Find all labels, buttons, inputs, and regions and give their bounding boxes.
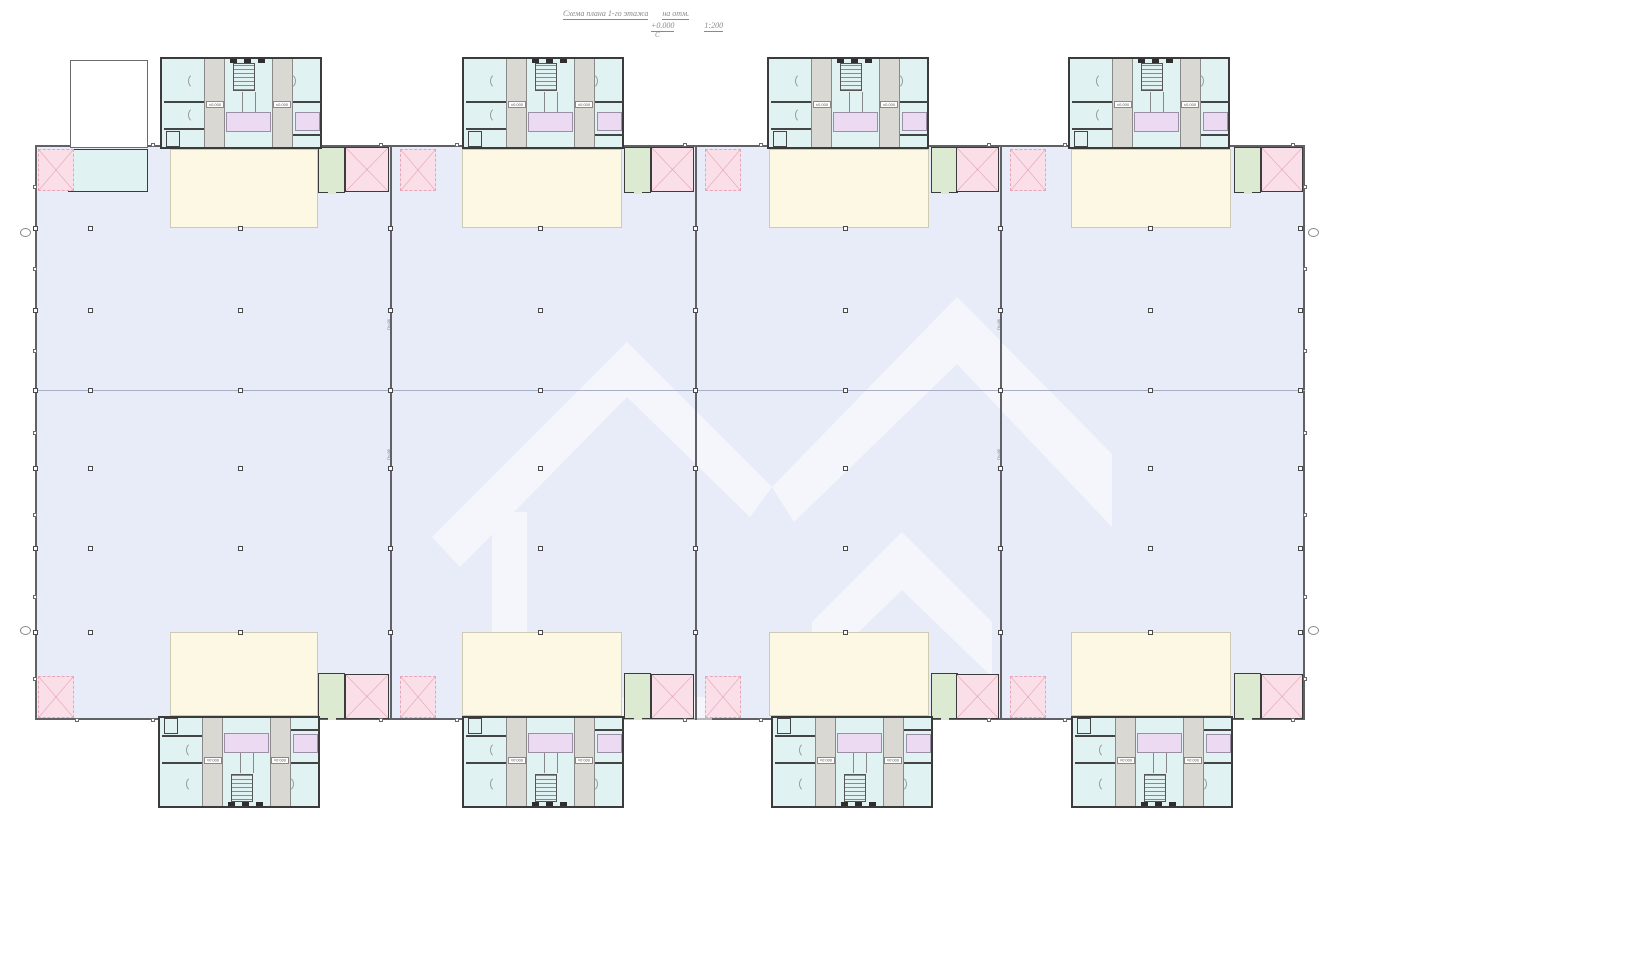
- partition: [557, 753, 558, 773]
- mezzanine-zone: [769, 632, 929, 716]
- partition: [1201, 101, 1229, 103]
- column-marker: [538, 546, 543, 551]
- door-arc-icon: [582, 776, 598, 792]
- wall-tick: [33, 677, 37, 681]
- partition: [853, 753, 854, 773]
- partition: [255, 92, 256, 112]
- axis-bubble: [1308, 626, 1319, 635]
- office-module: ±0.000 ±0.000: [1068, 57, 1230, 149]
- door-arc-icon: [188, 73, 204, 89]
- title-text: Схема плана 1-го этажа: [563, 9, 648, 20]
- wc-room: [468, 718, 482, 734]
- wall-tick: [987, 143, 991, 147]
- partition: [1072, 128, 1112, 130]
- elevation-tag: ±0.000: [813, 101, 831, 108]
- title-row-2: +0.000 1:200: [651, 21, 723, 30]
- door-arc-icon: [278, 776, 294, 792]
- elevation-tag: ±0.000: [204, 757, 222, 764]
- partition: [162, 763, 202, 765]
- column-marker: [693, 630, 698, 635]
- partition: [862, 92, 863, 112]
- column-marker: [1148, 466, 1153, 471]
- partition: [466, 736, 506, 738]
- utility-room: [295, 112, 320, 131]
- column-marker: [33, 388, 38, 393]
- partition: [771, 128, 811, 130]
- mezzanine-zone: [170, 632, 318, 716]
- wall-tick: [1303, 267, 1307, 271]
- vent-icon: [865, 59, 872, 63]
- vent-icon: [258, 59, 265, 63]
- elevation-tag: ±0.000: [817, 757, 835, 764]
- utility-room: [906, 734, 931, 753]
- column-marker: [238, 546, 243, 551]
- dock-zone-planned: [38, 149, 74, 191]
- dock-zone: [651, 674, 694, 719]
- elevation-tag: ±0.000: [1114, 101, 1132, 108]
- partition: [900, 134, 928, 136]
- column-marker: [1298, 308, 1303, 313]
- office-module: ±0.000 ±0.000: [462, 57, 624, 149]
- partition: [162, 736, 202, 738]
- column-marker: [538, 630, 543, 635]
- drawing-title: Схема плана 1-го этажа на отм. +0.000 1:…: [563, 9, 723, 40]
- lobby-room: [837, 733, 882, 753]
- door-arc-icon: [1188, 73, 1204, 89]
- vent-icon: [560, 59, 567, 63]
- wall-tick: [1303, 677, 1307, 681]
- door-arc-icon: [490, 107, 506, 123]
- door-arc-icon: [799, 776, 815, 792]
- wall-tick: [33, 513, 37, 517]
- stair-icon: [535, 774, 557, 802]
- column-marker: [538, 308, 543, 313]
- dock-zone-planned: [705, 676, 741, 718]
- partition: [775, 763, 815, 765]
- tech-room: [1234, 673, 1261, 719]
- column-marker: [843, 466, 848, 471]
- wall-tick: [1291, 143, 1295, 147]
- partition: [291, 763, 319, 765]
- lobby-room: [528, 733, 573, 753]
- column-marker: [388, 308, 393, 313]
- vent-icon: [841, 802, 848, 806]
- vent-icon: [1138, 59, 1145, 63]
- partition: [595, 763, 623, 765]
- wall-label: Пч-08: [386, 449, 391, 460]
- column-marker: [88, 630, 93, 635]
- door-arc-icon: [1096, 73, 1112, 89]
- column-marker: [388, 466, 393, 471]
- column-marker: [88, 466, 93, 471]
- column-marker: [998, 388, 1003, 393]
- wc-room: [1077, 718, 1091, 734]
- office-module: ±0.000 ±0.000: [1071, 716, 1233, 808]
- column-marker: [538, 388, 543, 393]
- mezzanine-zone: [1071, 149, 1231, 228]
- vent-icon: [546, 59, 553, 63]
- door-arc-icon: [887, 73, 903, 89]
- dock-zone-planned: [400, 149, 436, 191]
- door-arc-icon: [188, 107, 204, 123]
- column-marker: [238, 308, 243, 313]
- partition: [904, 730, 932, 732]
- partition: [595, 101, 623, 103]
- partition: [1072, 101, 1112, 103]
- office-module: ±0.000 ±0.000: [767, 57, 929, 149]
- stair-icon: [840, 63, 862, 91]
- lobby-room: [1134, 112, 1179, 132]
- elevation-tag: ±0.000: [271, 757, 289, 764]
- tech-room: [624, 673, 651, 719]
- column-marker: [843, 308, 848, 313]
- axis-bubble: [20, 626, 31, 635]
- partition: [1163, 92, 1164, 112]
- vent-icon: [242, 802, 249, 806]
- partition: [240, 753, 241, 773]
- column-marker: [1298, 466, 1303, 471]
- column-marker: [998, 308, 1003, 313]
- utility-room: [597, 112, 622, 131]
- vent-icon: [1155, 802, 1162, 806]
- section-mark: С: [655, 31, 723, 40]
- dock-zone: [1261, 674, 1303, 719]
- partition: [544, 92, 545, 112]
- dock-zone-planned: [1010, 149, 1046, 191]
- partition: [1201, 134, 1229, 136]
- vent-icon: [256, 802, 263, 806]
- column-marker: [388, 388, 393, 393]
- dock-zone: [956, 674, 999, 719]
- vent-icon: [1166, 59, 1173, 63]
- lobby-room: [1137, 733, 1182, 753]
- column-marker: [388, 546, 393, 551]
- partition: [1153, 753, 1154, 773]
- partition: [1204, 730, 1232, 732]
- lobby-room: [528, 112, 573, 132]
- partition: [1075, 763, 1115, 765]
- door-arc-icon: [186, 742, 202, 758]
- office-module: ±0.000 ±0.000: [160, 57, 322, 149]
- partition: [164, 128, 204, 130]
- partition: [253, 753, 254, 773]
- vent-icon: [532, 802, 539, 806]
- dock-zone-planned: [1010, 676, 1046, 718]
- floor-plan-canvas: Схема плана 1-го этажа на отм. +0.000 1:…: [0, 0, 1631, 960]
- elevation-tag: ±0.000: [508, 757, 526, 764]
- door-arc-icon: [795, 107, 811, 123]
- partition: [775, 736, 815, 738]
- annex-room: [68, 149, 148, 192]
- column-marker: [538, 226, 543, 231]
- dock-zone-planned: [400, 676, 436, 718]
- wall-tick: [987, 718, 991, 722]
- door-arc-icon: [1191, 776, 1207, 792]
- column-marker: [1298, 388, 1303, 393]
- vent-icon: [230, 59, 237, 63]
- dock-zone: [345, 147, 389, 192]
- stair-icon: [231, 774, 253, 802]
- partition: [904, 763, 932, 765]
- partition: [291, 730, 319, 732]
- column-marker: [693, 546, 698, 551]
- office-module: ±0.000 ±0.000: [771, 716, 933, 808]
- wall-tick: [683, 143, 687, 147]
- partition: [1204, 763, 1232, 765]
- wall-tick: [1303, 513, 1307, 517]
- tech-room: [931, 147, 958, 193]
- mezzanine-zone: [1071, 632, 1231, 716]
- vent-icon: [546, 802, 553, 806]
- column-marker: [538, 466, 543, 471]
- tech-room: [1234, 147, 1261, 193]
- title-text-2: на отм.: [662, 9, 689, 20]
- partition: [164, 101, 204, 103]
- vent-icon: [228, 802, 235, 806]
- partition: [866, 753, 867, 773]
- partition: [1166, 753, 1167, 773]
- column-marker: [1148, 630, 1153, 635]
- door-arc-icon: [490, 742, 506, 758]
- axis-bubble: [20, 228, 31, 237]
- column-marker: [388, 630, 393, 635]
- elevation-tag: ±0.000: [273, 101, 291, 108]
- stair-icon: [535, 63, 557, 91]
- partition: [1075, 736, 1115, 738]
- wall-tick: [75, 718, 79, 722]
- partition: [557, 92, 558, 112]
- wall-tick: [759, 718, 763, 722]
- dock-zone-planned: [38, 676, 74, 718]
- door-arc-icon: [795, 73, 811, 89]
- wall-tick: [1303, 185, 1307, 189]
- tech-room: [318, 147, 345, 193]
- wc-room: [777, 718, 791, 734]
- mezzanine-zone: [462, 632, 622, 716]
- elevation-tag: ±0.000: [1184, 757, 1202, 764]
- column-marker: [843, 546, 848, 551]
- vent-icon: [560, 802, 567, 806]
- dock-zone: [345, 674, 389, 719]
- partition: [242, 92, 243, 112]
- wall-tick: [33, 431, 37, 435]
- utility-room: [597, 734, 622, 753]
- mezzanine-zone: [769, 149, 929, 228]
- elevation-tag: ±0.000: [884, 757, 902, 764]
- column-marker: [88, 308, 93, 313]
- wc-room: [166, 131, 180, 147]
- partition: [771, 101, 811, 103]
- column-marker: [33, 226, 38, 231]
- wall-tick: [1303, 349, 1307, 353]
- column-marker: [1148, 546, 1153, 551]
- axis-bubble: [1308, 228, 1319, 237]
- tech-room: [624, 147, 651, 193]
- column-marker: [1298, 226, 1303, 231]
- door-arc-icon: [490, 776, 506, 792]
- lobby-room: [833, 112, 878, 132]
- stair-icon: [844, 774, 866, 802]
- dock-zone: [651, 147, 694, 192]
- wall-tick: [1063, 143, 1067, 147]
- utility-room: [902, 112, 927, 131]
- vent-icon: [869, 802, 876, 806]
- wall-tick: [379, 143, 383, 147]
- partition: [849, 92, 850, 112]
- door-arc-icon: [186, 776, 202, 792]
- column-marker: [238, 630, 243, 635]
- vent-icon: [1169, 802, 1176, 806]
- tech-room: [318, 673, 345, 719]
- column-marker: [998, 226, 1003, 231]
- door-arc-icon: [280, 73, 296, 89]
- partition: [466, 763, 506, 765]
- column-marker: [238, 226, 243, 231]
- elevation-tag: ±0.000: [508, 101, 526, 108]
- vent-icon: [1152, 59, 1159, 63]
- partition: [900, 101, 928, 103]
- wall-tick: [33, 185, 37, 189]
- vent-icon: [837, 59, 844, 63]
- wc-room: [468, 131, 482, 147]
- title-row-1: Схема плана 1-го этажа на отм.: [563, 9, 723, 18]
- mezzanine-zone: [170, 149, 318, 228]
- wall-tick: [151, 718, 155, 722]
- column-marker: [88, 546, 93, 551]
- door-arc-icon: [582, 73, 598, 89]
- office-module: ±0.000 ±0.000: [158, 716, 320, 808]
- hall-mid-line: [35, 390, 1305, 391]
- column-marker: [238, 388, 243, 393]
- column-marker: [998, 630, 1003, 635]
- vent-icon: [851, 59, 858, 63]
- partition: [595, 730, 623, 732]
- wall-tick: [1303, 595, 1307, 599]
- stair-icon: [1144, 774, 1166, 802]
- dock-zone: [956, 147, 999, 192]
- elevation-tag: ±0.000: [1181, 101, 1199, 108]
- column-marker: [1148, 388, 1153, 393]
- vent-icon: [1141, 802, 1148, 806]
- partition: [466, 101, 506, 103]
- wall-tick: [683, 718, 687, 722]
- utility-room: [293, 734, 318, 753]
- wall-tick: [1303, 431, 1307, 435]
- lobby-room: [224, 733, 269, 753]
- column-marker: [693, 388, 698, 393]
- column-marker: [843, 226, 848, 231]
- wc-room: [773, 131, 787, 147]
- column-marker: [388, 226, 393, 231]
- column-marker: [998, 466, 1003, 471]
- door-arc-icon: [891, 776, 907, 792]
- door-arc-icon: [1099, 742, 1115, 758]
- column-marker: [998, 546, 1003, 551]
- partition: [466, 128, 506, 130]
- wc-room: [1074, 131, 1088, 147]
- elevation-tag: ±0.000: [1117, 757, 1135, 764]
- column-marker: [1298, 630, 1303, 635]
- door-arc-icon: [490, 73, 506, 89]
- partition: [544, 753, 545, 773]
- utility-room: [1206, 734, 1231, 753]
- wall-tick: [151, 143, 155, 147]
- mezzanine-zone: [462, 149, 622, 228]
- vent-icon: [244, 59, 251, 63]
- lobby-room: [226, 112, 271, 132]
- column-marker: [693, 226, 698, 231]
- column-marker: [88, 226, 93, 231]
- wall-tick: [759, 143, 763, 147]
- scale-label: 1:200: [704, 21, 723, 32]
- partition: [293, 134, 321, 136]
- column-marker: [238, 466, 243, 471]
- wall-tick: [33, 595, 37, 599]
- column-marker: [693, 466, 698, 471]
- column-marker: [1148, 226, 1153, 231]
- vent-icon: [855, 802, 862, 806]
- stair-icon: [1141, 63, 1163, 91]
- column-marker: [88, 388, 93, 393]
- partition: [595, 134, 623, 136]
- wall-label: Пч-08: [996, 449, 1001, 460]
- column-marker: [1148, 308, 1153, 313]
- wall-label: Пч-08: [996, 319, 1001, 330]
- wall-tick: [33, 349, 37, 353]
- column-marker: [843, 630, 848, 635]
- partition: [293, 101, 321, 103]
- door-arc-icon: [1096, 107, 1112, 123]
- wc-room: [164, 718, 178, 734]
- door-arc-icon: [799, 742, 815, 758]
- wall-tick: [455, 143, 459, 147]
- wall-tick: [1063, 718, 1067, 722]
- vent-icon: [532, 59, 539, 63]
- column-marker: [33, 630, 38, 635]
- wall-tick: [379, 718, 383, 722]
- tech-room: [931, 673, 958, 719]
- wall-label: Пч-08: [386, 319, 391, 330]
- partition: [1150, 92, 1151, 112]
- wall-tick: [1291, 718, 1295, 722]
- wall-tick: [455, 718, 459, 722]
- door-arc-icon: [1099, 776, 1115, 792]
- elevation-tag: ±0.000: [575, 101, 593, 108]
- dock-zone-planned: [705, 149, 741, 191]
- column-marker: [843, 388, 848, 393]
- column-marker: [33, 466, 38, 471]
- elevation-tag: ±0.000: [880, 101, 898, 108]
- utility-room: [1203, 112, 1228, 131]
- column-marker: [1298, 546, 1303, 551]
- stair-icon: [233, 63, 255, 91]
- wall-tick: [33, 267, 37, 271]
- column-marker: [693, 308, 698, 313]
- office-module: ±0.000 ±0.000: [462, 716, 624, 808]
- column-marker: [33, 546, 38, 551]
- elevation-tag: ±0.000: [206, 101, 224, 108]
- column-marker: [33, 308, 38, 313]
- annex-outline: [70, 60, 148, 148]
- dock-zone: [1261, 147, 1303, 192]
- elevation-tag: ±0.000: [575, 757, 593, 764]
